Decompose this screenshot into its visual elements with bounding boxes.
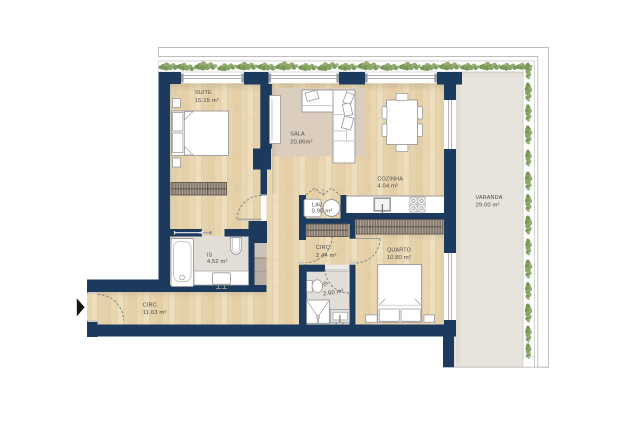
svg-text:IS: IS: [207, 253, 213, 259]
svg-text:4.52 m²: 4.52 m²: [207, 259, 228, 265]
svg-text:0.90 m²: 0.90 m²: [312, 209, 333, 215]
svg-text:COZINHA: COZINHA: [377, 177, 403, 183]
svg-text:10.80 m²: 10.80 m²: [387, 255, 411, 261]
svg-text:20.86m²: 20.86m²: [290, 139, 312, 145]
svg-text:11.63 m²: 11.63 m²: [143, 310, 167, 316]
svg-text:VARANDA: VARANDA: [476, 195, 503, 201]
svg-text:29.00 m²: 29.00 m²: [476, 203, 500, 209]
svg-text:QUARTO: QUARTO: [387, 248, 412, 254]
svg-text:LAV.: LAV.: [312, 202, 324, 208]
svg-text:4.04 m²: 4.04 m²: [377, 184, 398, 190]
svg-text:CIRC.: CIRC.: [316, 245, 332, 251]
svg-text:2.44 m²: 2.44 m²: [316, 253, 337, 259]
svg-text:CIRC.: CIRC.: [143, 303, 159, 309]
svg-text:15.15 m²: 15.15 m²: [195, 98, 219, 104]
svg-text:SALA: SALA: [290, 131, 305, 137]
svg-text:SUITE: SUITE: [195, 90, 212, 96]
